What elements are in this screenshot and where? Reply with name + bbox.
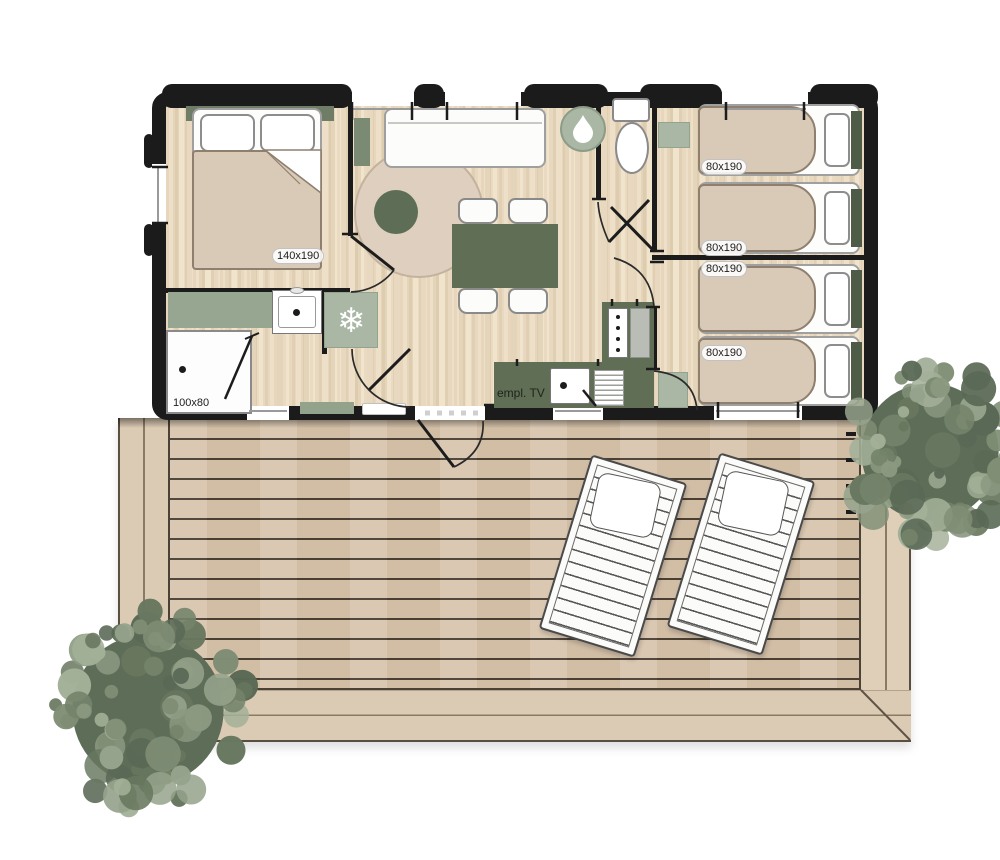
deck-joist-mark	[846, 458, 856, 462]
bed-pillow	[260, 114, 315, 152]
cooktop-panel	[630, 308, 650, 358]
entry-door-opening	[415, 406, 485, 420]
bed-pillow	[824, 272, 850, 326]
window-bottom-bathroom	[247, 406, 289, 420]
sofa	[384, 108, 546, 168]
bed-pillow	[200, 114, 255, 152]
wall-bedrooms-divider	[652, 255, 878, 260]
window-bottom-bedroom	[714, 406, 802, 420]
bedroom-wardrobe	[658, 372, 688, 408]
floorplan-canvas: 140x190 empl. TV ❄ 100x80	[0, 0, 1000, 860]
dining-table	[452, 224, 558, 288]
dining-chair	[508, 198, 548, 224]
window-top-sofa	[445, 92, 521, 106]
pouf	[374, 190, 418, 234]
deck-border-bottom	[118, 690, 911, 742]
dining-chair	[508, 288, 548, 314]
deck-joist-mark	[846, 432, 856, 436]
deck-border-right	[861, 418, 911, 690]
toilet-bowl	[615, 122, 649, 174]
bedside-shelf	[851, 111, 862, 169]
bed-size-label: 80x190	[701, 159, 747, 175]
dining-chair	[458, 288, 498, 314]
window-bottom-kitchen	[553, 406, 603, 420]
fridge: ❄	[324, 292, 378, 348]
cooktop-knob	[616, 326, 620, 330]
dining-chair	[458, 198, 498, 224]
deck-border-left	[118, 418, 168, 692]
cooktop-knob	[616, 315, 620, 319]
tv-unit	[354, 118, 370, 166]
bed-pillow	[824, 344, 850, 398]
bed-size-label: 80x190	[701, 345, 747, 361]
bed-size-label: 80x190	[701, 240, 747, 256]
window-left-bedroom	[152, 164, 166, 224]
bath-mat	[300, 402, 354, 414]
sofa-back-line	[388, 122, 542, 124]
bed-size-label: 140x190	[272, 248, 324, 264]
basin-drain-dot	[293, 309, 300, 316]
water-heater	[560, 106, 606, 152]
deck-joist-mark	[846, 510, 856, 514]
tv-spot-label: empl. TV	[497, 386, 545, 400]
water-drop-icon	[571, 114, 595, 144]
kitchen-sink	[550, 368, 590, 404]
toilet-cistern	[612, 98, 650, 122]
deck	[118, 418, 911, 742]
deck-joist-mark	[846, 484, 856, 488]
bedside-shelf	[851, 189, 862, 247]
hall-wardrobe	[658, 122, 690, 148]
sink-drain-dot	[560, 382, 567, 389]
bed-pillow	[824, 191, 850, 245]
bedside-shelf	[851, 342, 862, 400]
bedside-shelf	[851, 270, 862, 328]
duvet-fold	[264, 148, 322, 196]
cooktop-knob	[616, 348, 620, 352]
bed-size-label: 80x190	[701, 261, 747, 277]
entry-tray	[362, 403, 406, 415]
window-top-1	[352, 92, 414, 106]
shower-size-label: 100x80	[169, 396, 213, 410]
snowflake-icon: ❄	[325, 295, 377, 347]
cooktop-knob	[616, 337, 620, 341]
wall-bedroom-living	[348, 106, 353, 236]
bed-pillow	[824, 113, 850, 167]
sink-drainer	[594, 370, 624, 406]
wall-hallway	[652, 106, 657, 252]
bathroom-vanity	[168, 292, 272, 328]
basin-faucet	[290, 287, 304, 294]
shower-drain-dot	[179, 366, 186, 373]
